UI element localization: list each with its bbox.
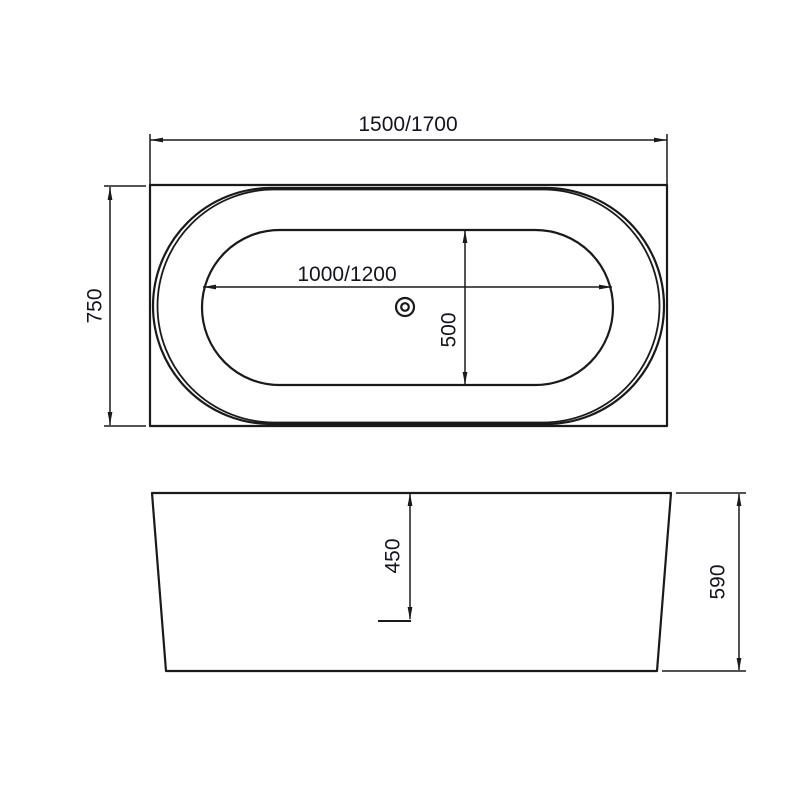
arrow-up-icon <box>408 493 413 506</box>
arrow-down-icon <box>108 412 113 425</box>
overall-height-extension-lines <box>662 493 746 671</box>
arrow-down-icon <box>737 658 742 671</box>
dimension-overall-length: 1500/1700 <box>150 113 667 186</box>
basin-width-label: 500 <box>438 312 461 347</box>
arrow-left-icon <box>150 138 163 143</box>
drain-inner-circle <box>401 303 409 311</box>
arrow-up-icon <box>463 230 468 243</box>
front-view-outline <box>152 493 671 671</box>
arrow-up-icon <box>737 493 742 506</box>
overall-width-label: 750 <box>84 288 107 323</box>
arrow-down-icon <box>408 607 413 620</box>
dimension-basin-length: 1000/1200 <box>203 263 612 289</box>
drawing-canvas: 1500/1700 750 1000/1200 500 <box>0 0 800 800</box>
front-view: 450 590 <box>152 493 746 671</box>
basin-outline <box>202 230 613 385</box>
dimension-overall-width: 750 <box>84 186 147 426</box>
top-view: 1500/1700 750 1000/1200 500 <box>84 113 668 426</box>
dimension-basin-width: 500 <box>438 230 468 385</box>
overall-length-label: 1500/1700 <box>358 113 457 136</box>
overall-height-label: 590 <box>707 564 730 599</box>
dimension-inner-depth: 450 <box>378 493 412 621</box>
inner-depth-label: 450 <box>382 538 405 573</box>
dimension-overall-height: 590 <box>662 493 746 671</box>
bathtub-technical-drawing: 1500/1700 750 1000/1200 500 <box>0 0 800 800</box>
basin-length-label: 1000/1200 <box>297 263 396 286</box>
arrow-right-icon <box>654 138 667 143</box>
overall-length-extension-lines <box>150 134 667 186</box>
drain-outer-circle <box>396 298 414 316</box>
arrow-down-icon <box>463 372 468 385</box>
arrow-up-icon <box>108 187 113 200</box>
